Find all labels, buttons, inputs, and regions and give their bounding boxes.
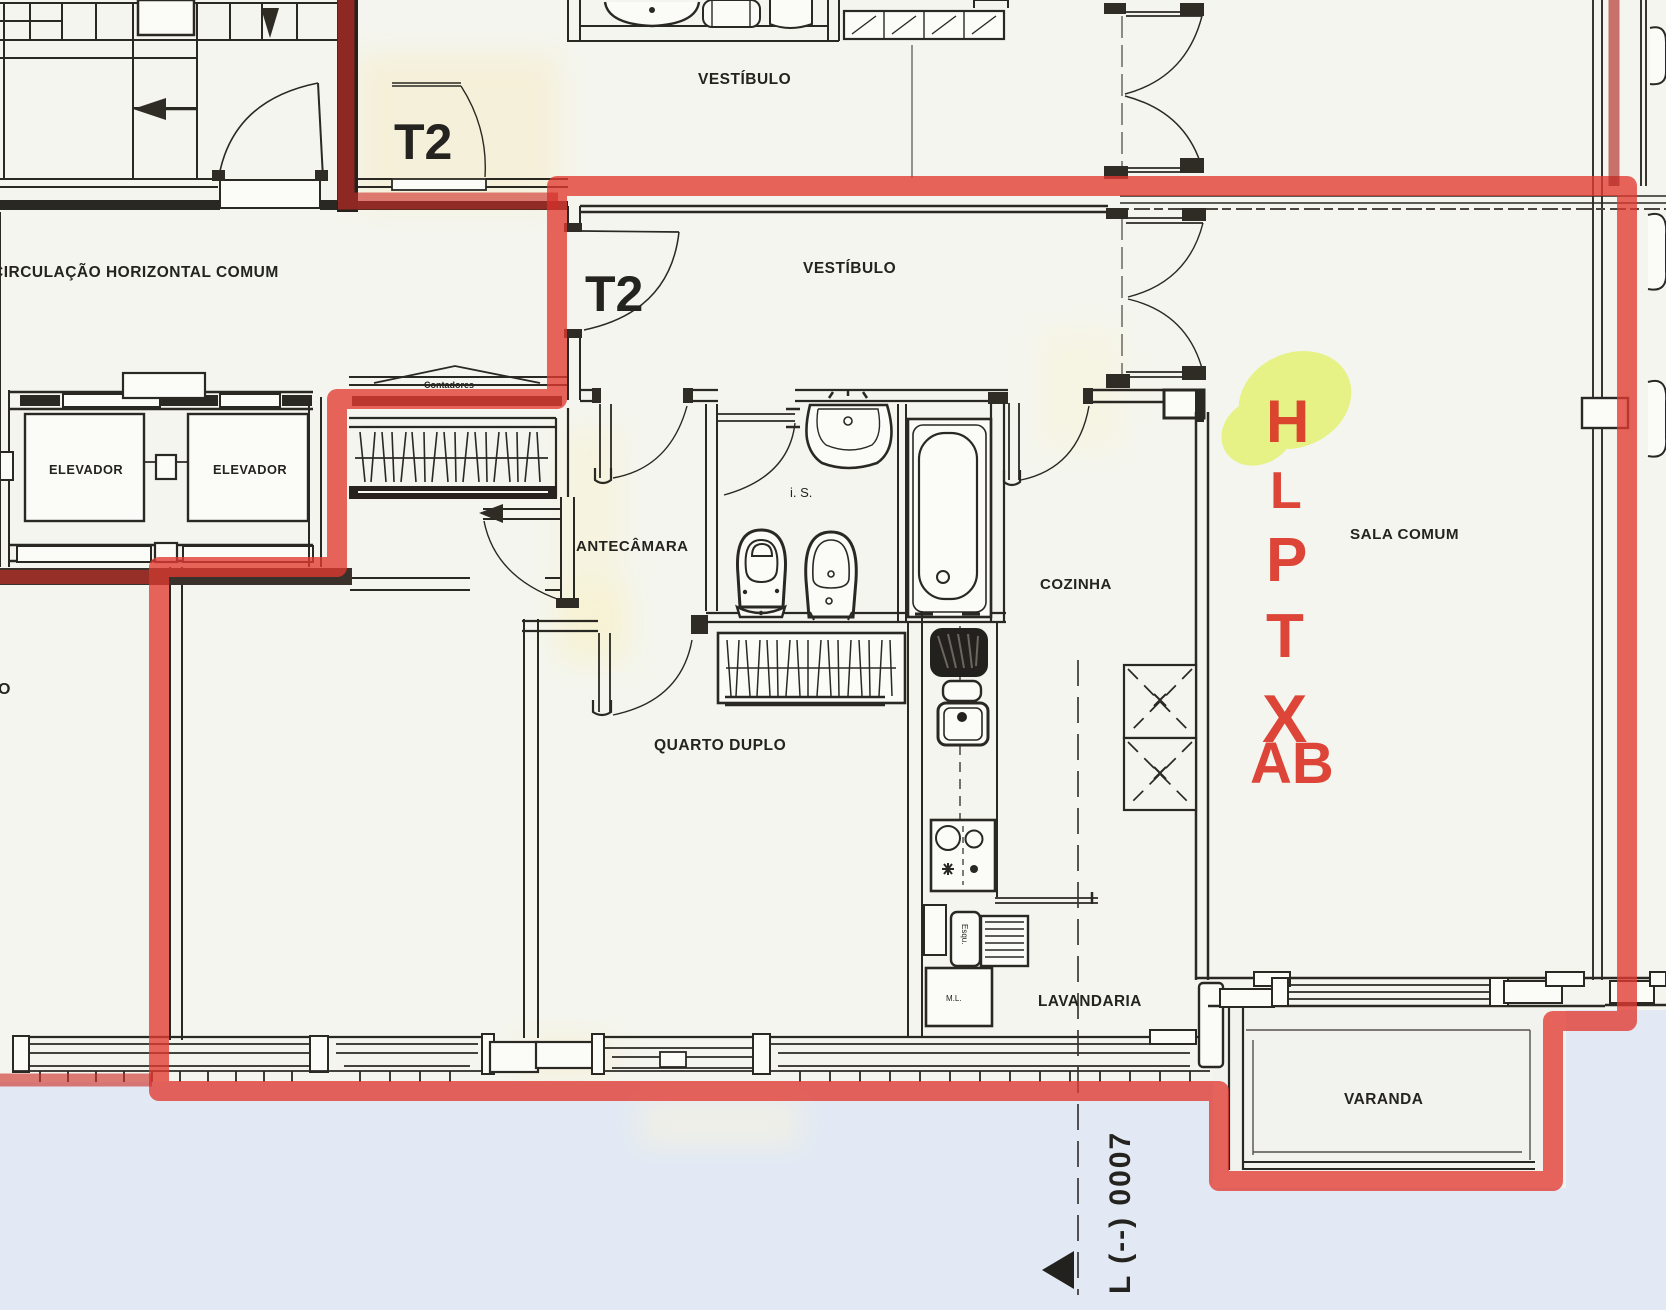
svg-text:Contadores: Contadores — [424, 380, 474, 390]
svg-text:VARANDA: VARANDA — [1344, 1091, 1423, 1108]
svg-text:L: L — [1270, 462, 1302, 520]
svg-text:VESTÍBULO: VESTÍBULO — [803, 260, 896, 277]
svg-text:O: O — [0, 681, 10, 698]
svg-text:T: T — [1266, 602, 1304, 671]
svg-text:P: P — [1266, 526, 1307, 595]
svg-text:COZINHA: COZINHA — [1040, 576, 1112, 593]
svg-text:M.L.: M.L. — [946, 994, 962, 1003]
svg-text:VESTÍBULO: VESTÍBULO — [698, 71, 791, 88]
svg-text:ELEVADOR: ELEVADOR — [213, 462, 287, 477]
svg-text:i. S.: i. S. — [790, 485, 812, 500]
svg-text:CIRCULAÇÃO HORIZONTAL COMUM: CIRCULAÇÃO HORIZONTAL COMUM — [0, 263, 279, 281]
svg-text:ELEVADOR: ELEVADOR — [49, 462, 123, 477]
svg-text:LAVANDARIA: LAVANDARIA — [1038, 993, 1142, 1010]
svg-text:QUARTO DUPLO: QUARTO DUPLO — [654, 737, 786, 754]
svg-text:AB: AB — [1250, 731, 1334, 796]
svg-text:H: H — [1266, 388, 1309, 455]
svg-text:T2: T2 — [394, 114, 452, 170]
svg-text:Esqu.: Esqu. — [960, 924, 969, 944]
svg-text:SALA COMUM: SALA COMUM — [1350, 526, 1459, 543]
svg-text:T2: T2 — [585, 266, 643, 322]
svg-text:L (--) 0007: L (--) 0007 — [1104, 1131, 1137, 1294]
svg-text:ANTECÂMARA: ANTECÂMARA — [576, 537, 689, 555]
